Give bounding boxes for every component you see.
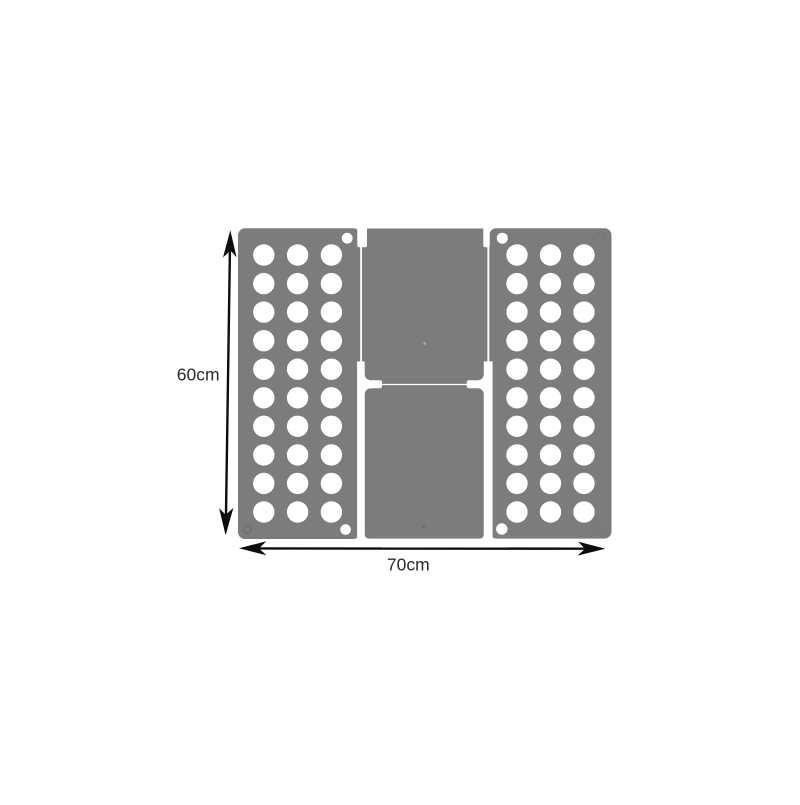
svg-text:70cm: 70cm (387, 554, 430, 574)
svg-text:60cm: 60cm (177, 365, 220, 385)
